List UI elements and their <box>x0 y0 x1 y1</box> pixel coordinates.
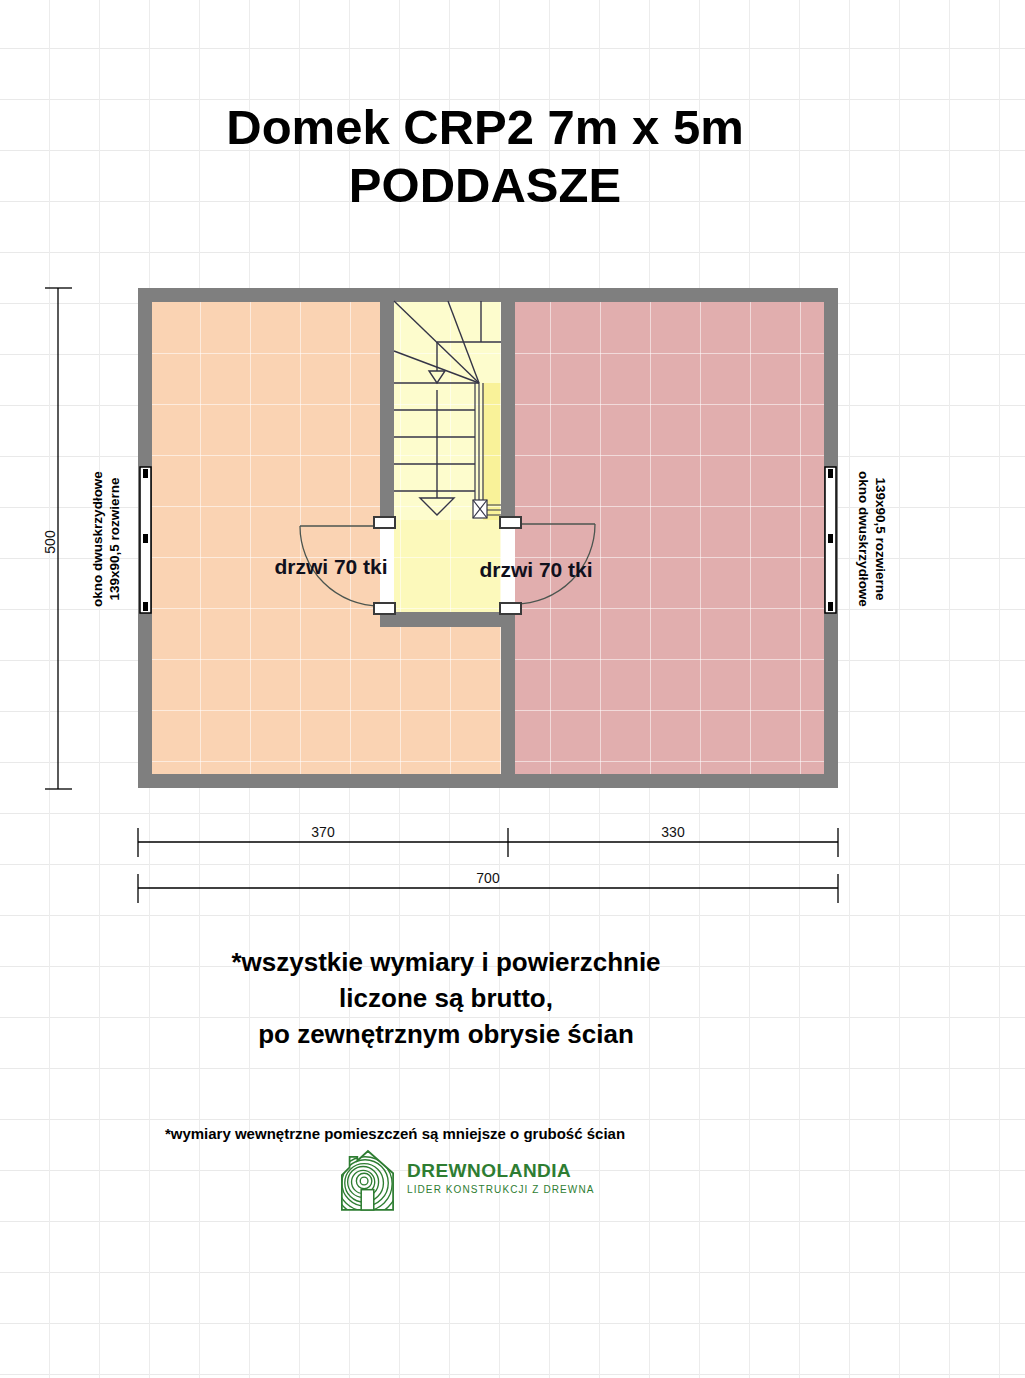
floor-plan-page: Domek CRP2 7m x 5m PODDASZE <box>0 0 1025 1378</box>
door-label-left: drzwi 70 tki <box>251 555 411 579</box>
page-title-line2: PODDASZE <box>135 156 835 214</box>
stair-winder-lines <box>394 301 501 383</box>
dim-width-700: 700 <box>448 870 528 886</box>
page-title: Domek CRP2 7m x 5m PODDASZE <box>135 98 835 214</box>
window-left-symbol <box>140 467 151 613</box>
window-label-left-line2: 139x90,5 rozwierne <box>106 459 123 619</box>
dim-width-330: 330 <box>633 824 713 840</box>
window-label-right-line1: 139x90,5 rozwierne <box>872 459 889 619</box>
logo: DREWNOLANDIA LIDER KONSTRUKCJI Z DREWNA <box>338 1148 595 1212</box>
stair-walkline <box>420 342 454 515</box>
dimension-lines <box>45 288 838 903</box>
window-right-symbol <box>825 467 836 613</box>
window-label-right-line2: okno dwuskrzydłowe <box>855 459 872 619</box>
logo-tagline: LIDER KONSTRUKCJI Z DREWNA <box>407 1184 595 1195</box>
window-label-right: 139x90,5 rozwierne okno dwuskrzydłowe <box>855 459 889 619</box>
wood-grain-house-icon <box>338 1148 396 1212</box>
page-title-line1: Domek CRP2 7m x 5m <box>135 98 835 156</box>
window-label-left: okno dwuskrzydłowe 139x90,5 rozwierne <box>89 459 123 619</box>
note-main-line1: *wszystkie wymiary i powierzchnie <box>146 944 746 980</box>
dim-width-370: 370 <box>283 824 363 840</box>
dim-height-500: 500 <box>42 502 58 582</box>
logo-name: DREWNOLANDIA <box>407 1161 595 1181</box>
note-main-line3: po zewnętrznym obrysie ścian <box>146 1016 746 1052</box>
window-label-left-line1: okno dwuskrzydłowe <box>89 459 106 619</box>
note-main: *wszystkie wymiary i powierzchnie liczon… <box>146 944 746 1052</box>
note-secondary: *wymiary wewnętrzne pomieszczeń są mniej… <box>145 1125 645 1142</box>
stair-handrail <box>473 383 501 518</box>
note-main-line2: liczone są brutto, <box>146 980 746 1016</box>
door-label-right: drzwi 70 tki <box>456 558 616 582</box>
